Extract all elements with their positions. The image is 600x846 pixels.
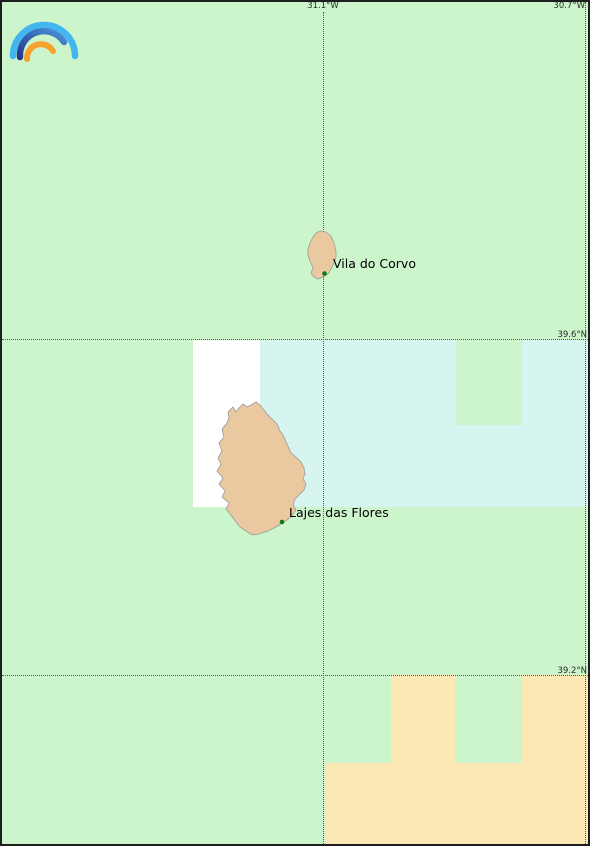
gridline-label-39-6n: 39.6°N <box>550 330 587 340</box>
logo-outer-arc-icon <box>13 25 75 56</box>
island-corvo <box>308 231 336 279</box>
map-canvas[interactable]: 31.1°W 30.7°W 39.6°N 39.2°N Vila do Corv… <box>0 0 590 846</box>
place-marker-lajes-das-flores <box>280 520 285 525</box>
gridline-label-30-7w: 30.7°W <box>540 1 585 11</box>
right-margin <box>590 0 600 846</box>
region-sea-cyan-cell <box>260 340 588 507</box>
region-sand-cell-1 <box>391 675 455 763</box>
region-white-cell <box>193 340 260 507</box>
gridline-label-31-1w: 31.1°W <box>295 1 351 11</box>
logo-middle-arc-icon <box>20 31 64 57</box>
place-label-lajes-das-flores: Lajes das Flores <box>289 506 389 520</box>
place-label-vila-do-corvo: Vila do Corvo <box>333 257 416 271</box>
logo-inner-arc-icon <box>27 44 53 59</box>
gridline-parallel-39-2n <box>2 675 588 676</box>
region-green-cell <box>456 340 522 425</box>
region-sand-cell-2 <box>522 675 588 763</box>
region-sand-cell-3 <box>326 763 588 846</box>
place-marker-vila-do-corvo <box>322 271 327 276</box>
rainbow-arcs-logo <box>6 6 84 64</box>
